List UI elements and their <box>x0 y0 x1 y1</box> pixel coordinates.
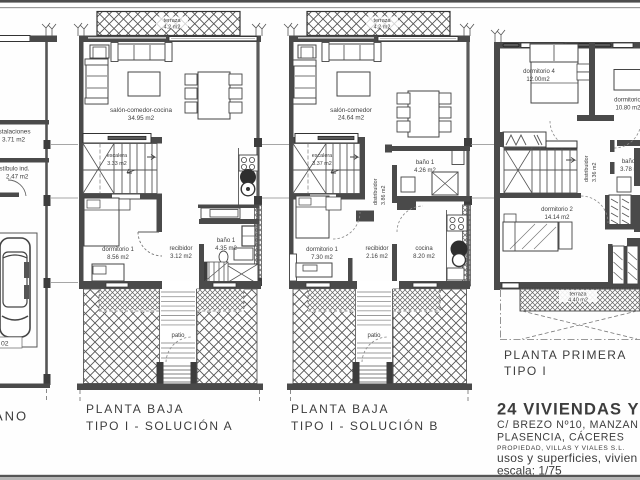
svg-text:PLANTA BAJA: PLANTA BAJA <box>291 402 389 416</box>
svg-text:4.40 m2: 4.40 m2 <box>568 298 588 304</box>
svg-text:baño 1: baño 1 <box>217 238 236 244</box>
svg-text:24 VIVIENDAS Y: 24 VIVIENDAS Y <box>497 401 640 419</box>
svg-text:8.20 m2: 8.20 m2 <box>413 254 435 260</box>
svg-text:3.12 m2: 3.12 m2 <box>170 254 192 260</box>
svg-text:dormitorio 2: dormitorio 2 <box>541 207 573 213</box>
svg-text:8.56 m2: 8.56 m2 <box>107 255 129 261</box>
svg-text:7.30 m2: 7.30 m2 <box>311 255 333 261</box>
svg-text:14.14 m2: 14.14 m2 <box>544 215 570 221</box>
svg-text:dormitorio 1: dormitorio 1 <box>102 247 134 253</box>
svg-text:2.16 m2: 2.16 m2 <box>366 254 388 260</box>
svg-text:terraza: terraza <box>373 18 391 24</box>
svg-text:terraza: terraza <box>163 18 181 24</box>
svg-text:3.71 m2: 3.71 m2 <box>2 137 26 144</box>
svg-text:4.35 m2: 4.35 m2 <box>215 246 237 252</box>
svg-text:TIPO I: TIPO I <box>504 364 547 378</box>
svg-text:cocina: cocina <box>415 246 433 252</box>
svg-text:3.37 m2: 3.37 m2 <box>312 161 331 167</box>
svg-text:patio: patio <box>367 333 381 339</box>
svg-text:TANO: TANO <box>0 409 28 424</box>
svg-text:PLANTA PRIMERA: PLANTA PRIMERA <box>504 348 627 362</box>
svg-text:dormitorio 1: dormitorio 1 <box>306 247 338 253</box>
svg-text:patio: patio <box>171 333 185 339</box>
svg-text:estíbulo ind.: estíbulo ind. <box>0 166 30 173</box>
svg-text:dormitorio 3: dormitorio 3 <box>614 98 640 104</box>
svg-text:PLASENCIA, CÁCERES: PLASENCIA, CÁCERES <box>497 431 624 444</box>
svg-text:C/ BREZO Nº10, MANZAN: C/ BREZO Nº10, MANZAN <box>497 419 639 431</box>
svg-text:salón-comedor-cocina: salón-comedor-cocina <box>110 107 172 114</box>
svg-text:4.2 m2: 4.2 m2 <box>374 25 391 31</box>
svg-text:12.00m2: 12.00m2 <box>526 77 550 83</box>
svg-text:distribuidor: distribuidor <box>373 178 379 205</box>
svg-text:TIPO I - SOLUCIÓN B: TIPO I - SOLUCIÓN B <box>291 418 439 433</box>
svg-text:escalera: escalera <box>312 153 332 159</box>
svg-text:escala: 1/75: escala: 1/75 <box>497 464 562 478</box>
svg-text:TIPO I - SOLUCIÓN A: TIPO I - SOLUCIÓN A <box>86 418 233 433</box>
svg-text:recibidor: recibidor <box>169 246 192 252</box>
svg-text:3.86 m2: 3.86 m2 <box>381 186 387 205</box>
svg-text:salón-comedor: salón-comedor <box>330 107 372 114</box>
svg-text:baño 1: baño 1 <box>416 160 435 166</box>
svg-text:10.80 m2: 10.80 m2 <box>615 106 640 112</box>
svg-text:distribuidor: distribuidor <box>584 155 590 182</box>
svg-text:dormitorio 4: dormitorio 4 <box>523 69 555 75</box>
svg-text:4.2 m2: 4.2 m2 <box>164 25 181 31</box>
svg-text:3.33 m2: 3.33 m2 <box>107 161 126 167</box>
svg-text:34.95 m2: 34.95 m2 <box>128 115 155 122</box>
svg-text:3.36 m2: 3.36 m2 <box>592 163 598 182</box>
svg-text:02: 02 <box>1 341 9 348</box>
svg-text:escalera: escalera <box>107 153 127 159</box>
svg-text:nstalaciones: nstalaciones <box>0 129 31 136</box>
svg-text:2.47 m2: 2.47 m2 <box>6 174 29 181</box>
svg-text:PLANTA BAJA: PLANTA BAJA <box>86 402 184 416</box>
svg-text:24.64 m2: 24.64 m2 <box>338 115 365 122</box>
svg-text:recibidor: recibidor <box>365 246 388 252</box>
